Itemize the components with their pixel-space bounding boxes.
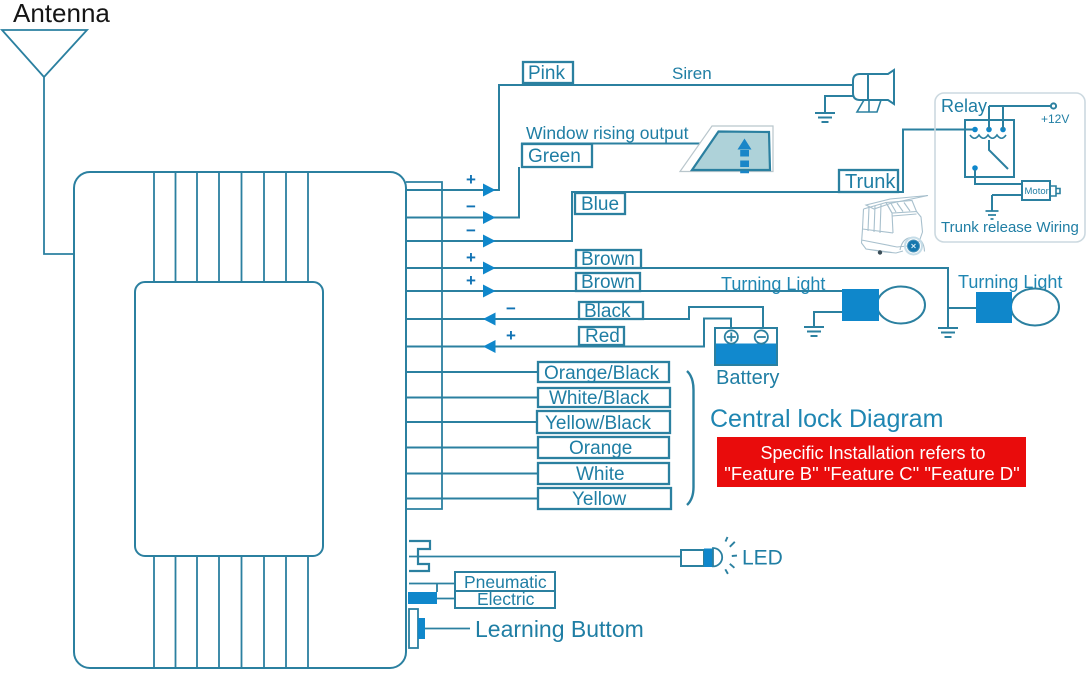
svg-text:−: − — [466, 197, 476, 216]
svg-text:Trunk: Trunk — [845, 171, 896, 193]
svg-text:Blue: Blue — [581, 194, 619, 215]
svg-text:Specific Installation refers t: Specific Installation refers to — [760, 443, 985, 463]
svg-text:−: − — [506, 299, 516, 318]
svg-text:Yellow/Black: Yellow/Black — [545, 413, 651, 434]
svg-text:Window rising output: Window rising output — [526, 123, 689, 143]
svg-text:+: + — [466, 248, 476, 267]
svg-text:Electric: Electric — [477, 589, 535, 609]
svg-text:Brown: Brown — [581, 272, 635, 293]
svg-text:Siren: Siren — [672, 64, 712, 83]
svg-text:Central lock Diagram: Central lock Diagram — [710, 405, 943, 433]
svg-text:Motor: Motor — [1025, 186, 1049, 197]
svg-text:LED: LED — [742, 547, 783, 570]
svg-text:Orange: Orange — [569, 438, 632, 459]
svg-text:Orange/Black: Orange/Black — [544, 363, 660, 384]
svg-text:White: White — [576, 464, 625, 485]
svg-text:Pink: Pink — [528, 63, 565, 84]
svg-text:Turning Light: Turning Light — [958, 272, 1062, 292]
svg-text:Antenna: Antenna — [13, 0, 110, 28]
svg-text:"Feature B" "Feature C" "Featu: "Feature B" "Feature C" "Feature D" — [724, 463, 1019, 484]
svg-text:Brown: Brown — [581, 249, 635, 270]
svg-text:−: − — [466, 221, 476, 240]
svg-text:Trunk release Wiring: Trunk release Wiring — [941, 219, 1079, 236]
svg-text:+: + — [466, 271, 476, 290]
svg-text:Battery: Battery — [716, 367, 779, 389]
svg-text:Green: Green — [528, 146, 581, 167]
svg-text:+12V: +12V — [1041, 112, 1069, 126]
svg-text:+: + — [506, 326, 516, 345]
svg-text:Turning Light: Turning Light — [721, 274, 825, 294]
svg-text:White/Black: White/Black — [549, 388, 650, 409]
svg-text:Learning Buttom: Learning Buttom — [475, 616, 644, 642]
svg-text:Yellow: Yellow — [572, 489, 627, 510]
svg-text:Red: Red — [585, 326, 620, 347]
svg-text:+: + — [466, 170, 476, 189]
svg-text:Black: Black — [584, 301, 631, 322]
svg-text:Relay: Relay — [941, 96, 987, 116]
